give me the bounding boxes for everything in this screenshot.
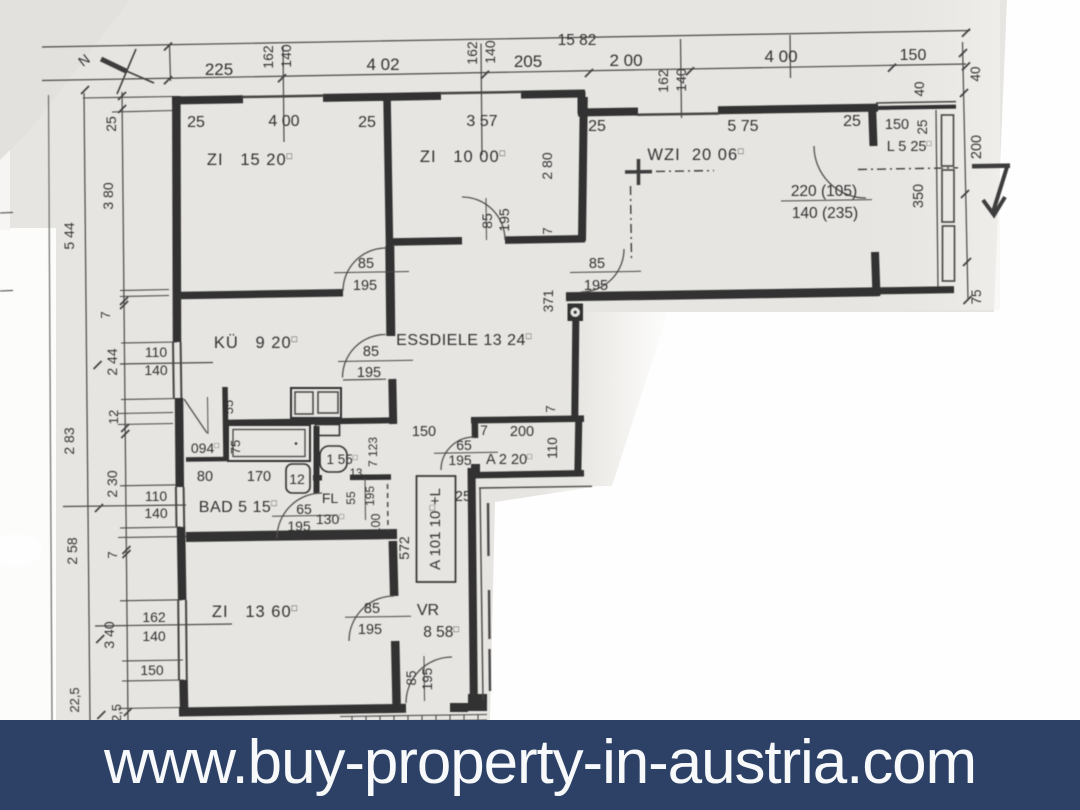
svg-text:A 2 20□: A 2 20□ xyxy=(486,452,532,468)
svg-text:140: 140 xyxy=(144,505,168,521)
svg-text:25: 25 xyxy=(103,116,119,132)
svg-text:65: 65 xyxy=(296,501,312,517)
svg-text:150: 150 xyxy=(885,117,909,133)
svg-text:15 82: 15 82 xyxy=(558,32,597,49)
svg-text:40: 40 xyxy=(912,81,927,96)
svg-text:7: 7 xyxy=(480,423,488,438)
svg-text:25: 25 xyxy=(358,114,376,131)
svg-text:4 00: 4 00 xyxy=(268,113,299,130)
svg-text:7: 7 xyxy=(543,405,558,412)
svg-text:150: 150 xyxy=(412,424,436,440)
svg-text:225: 225 xyxy=(205,60,233,79)
svg-text:85: 85 xyxy=(479,213,495,229)
svg-text:195: 195 xyxy=(357,365,381,381)
svg-text:195: 195 xyxy=(448,452,472,468)
svg-text:195: 195 xyxy=(287,518,311,534)
svg-text:100: 100 xyxy=(369,514,383,535)
svg-text:KÜ 9 20□: KÜ 9 20□ xyxy=(214,334,298,352)
svg-text:A 101 10□+L: A 101 10□+L xyxy=(427,488,444,570)
svg-text:200: 200 xyxy=(510,424,534,440)
svg-text:2 80: 2 80 xyxy=(539,152,555,179)
svg-text:3 80: 3 80 xyxy=(100,182,116,209)
svg-text:ZI 15 20□: ZI 15 20□ xyxy=(207,151,293,169)
svg-text:150: 150 xyxy=(140,662,164,678)
svg-text:200: 200 xyxy=(969,135,985,159)
svg-text:ZI 13 60□: ZI 13 60□ xyxy=(212,603,298,621)
svg-text:3 40: 3 40 xyxy=(101,621,117,648)
svg-text:65: 65 xyxy=(456,437,472,453)
svg-text:85: 85 xyxy=(364,601,380,617)
svg-text:220 (105): 220 (105) xyxy=(791,183,857,200)
svg-text:4 02: 4 02 xyxy=(366,55,399,74)
svg-text:5 44: 5 44 xyxy=(61,222,77,249)
svg-text:WZI 20 06□: WZI 20 06□ xyxy=(647,146,744,164)
svg-text:162: 162 xyxy=(464,41,480,65)
svg-text:140: 140 xyxy=(278,44,294,68)
svg-text:350: 350 xyxy=(911,184,927,208)
svg-text:150: 150 xyxy=(900,47,927,64)
svg-text:BAD 5 15□: BAD 5 15□ xyxy=(199,498,277,516)
svg-text:2 58: 2 58 xyxy=(64,537,80,564)
svg-text:www.buy-property-in-austria.co: www.buy-property-in-austria.com xyxy=(103,728,976,797)
svg-text:25: 25 xyxy=(843,113,861,130)
svg-text:ZI 10 00□: ZI 10 00□ xyxy=(420,148,506,166)
svg-text:110: 110 xyxy=(145,488,168,504)
svg-text:75: 75 xyxy=(228,440,243,454)
svg-text:162: 162 xyxy=(260,45,276,69)
svg-text:12: 12 xyxy=(289,471,305,487)
svg-text:195: 195 xyxy=(353,278,377,294)
svg-text:170: 170 xyxy=(247,469,271,485)
svg-text:25: 25 xyxy=(455,489,471,505)
svg-text:195: 195 xyxy=(584,278,608,294)
svg-text:110: 110 xyxy=(145,344,168,360)
svg-text:140: 140 xyxy=(673,68,689,92)
svg-text:140: 140 xyxy=(144,362,168,378)
svg-text:162: 162 xyxy=(655,69,671,93)
svg-text:140: 140 xyxy=(482,40,498,64)
svg-text:ESSDIELE 13 24□: ESSDIELE 13 24□ xyxy=(396,331,532,349)
svg-text:85: 85 xyxy=(363,344,379,360)
svg-text:85: 85 xyxy=(358,256,374,272)
svg-text:7: 7 xyxy=(540,227,555,234)
svg-text:7: 7 xyxy=(105,551,120,558)
svg-text:L 5 25□: L 5 25□ xyxy=(887,139,932,155)
svg-text:572: 572 xyxy=(396,536,412,560)
svg-text:371: 371 xyxy=(541,290,556,313)
svg-text:195: 195 xyxy=(363,486,377,506)
svg-text:80: 80 xyxy=(197,469,213,485)
svg-text:110: 110 xyxy=(545,437,560,459)
svg-text:2 30: 2 30 xyxy=(104,470,120,497)
svg-text:2 00: 2 00 xyxy=(609,51,642,70)
svg-text:5 75: 5 75 xyxy=(727,118,758,135)
svg-text:13: 13 xyxy=(350,468,363,480)
svg-text:22,5: 22,5 xyxy=(67,687,82,712)
svg-text:85: 85 xyxy=(404,670,419,685)
svg-text:55: 55 xyxy=(221,400,236,414)
svg-text:75: 75 xyxy=(969,289,984,304)
svg-text:162: 162 xyxy=(142,609,166,625)
svg-text:FL: FL xyxy=(322,490,339,506)
svg-text:205: 205 xyxy=(514,52,542,71)
svg-text:25: 25 xyxy=(187,114,205,131)
svg-text:2,5: 2,5 xyxy=(109,704,124,722)
svg-text:85: 85 xyxy=(589,256,605,272)
svg-text:2 83: 2 83 xyxy=(61,427,77,454)
svg-text:195: 195 xyxy=(420,668,435,691)
svg-text:195: 195 xyxy=(358,622,382,638)
svg-text:3 57: 3 57 xyxy=(466,113,497,130)
svg-text:VR: VR xyxy=(417,602,439,619)
svg-text:140 (235): 140 (235) xyxy=(792,205,858,222)
svg-text:7 123: 7 123 xyxy=(366,437,380,467)
svg-text:140: 140 xyxy=(142,628,166,644)
svg-text:12: 12 xyxy=(106,410,121,424)
svg-text:25: 25 xyxy=(915,119,930,134)
svg-text:25: 25 xyxy=(588,118,606,135)
svg-text:4 00: 4 00 xyxy=(764,47,797,66)
svg-text:195: 195 xyxy=(496,208,512,232)
svg-text:55: 55 xyxy=(344,491,358,505)
svg-text:40: 40 xyxy=(968,66,983,81)
svg-text:2 44: 2 44 xyxy=(104,348,120,375)
svg-text:7: 7 xyxy=(98,311,113,318)
